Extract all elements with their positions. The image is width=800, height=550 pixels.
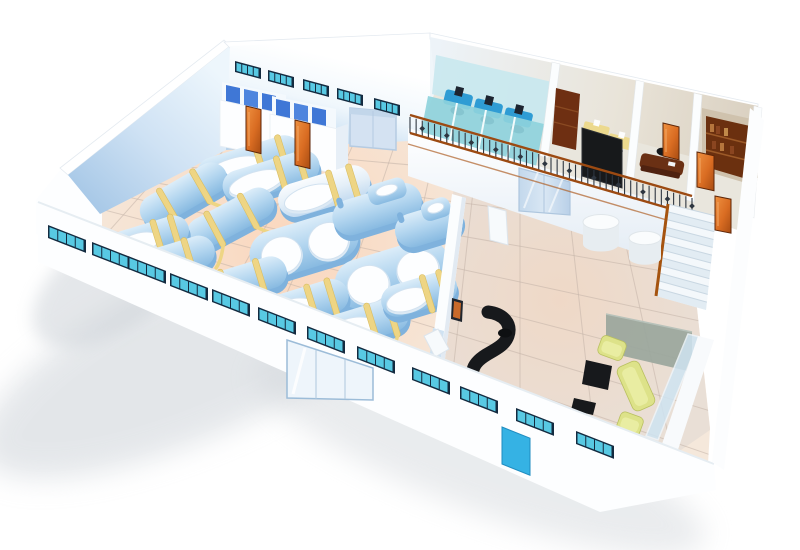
window-pane: [242, 64, 247, 73]
window-pane: [237, 63, 242, 72]
window-pane: [344, 91, 349, 100]
window-pane: [381, 101, 386, 110]
brown-cabinet: [552, 88, 580, 150]
office-door-1: [663, 123, 679, 160]
window-pane: [270, 72, 275, 81]
window-pane: [287, 77, 292, 86]
office-door-3: [715, 196, 731, 233]
window-pane: [275, 73, 280, 82]
restroom-door-2: [295, 120, 310, 169]
book-5: [720, 143, 724, 151]
window-pane: [248, 66, 253, 75]
book-4: [712, 141, 716, 149]
window-pane: [350, 93, 355, 102]
reception-chair: [498, 329, 512, 338]
floorplan-stage: [0, 0, 800, 550]
floorplan-illustration: [0, 0, 800, 550]
restroom-door-1: [246, 106, 261, 154]
window-pane: [356, 95, 361, 104]
window-pane: [376, 100, 381, 109]
table-top: [629, 231, 661, 244]
staircase: [656, 204, 716, 310]
window-pane: [310, 82, 315, 91]
window-pane: [393, 105, 398, 114]
open-door-leaf: [488, 206, 508, 245]
table-top: [583, 214, 619, 229]
back-sliding-door: [350, 108, 396, 150]
window-pane: [322, 86, 327, 95]
wall-picture: [453, 301, 461, 319]
book-2: [716, 126, 720, 134]
window-pane: [339, 90, 344, 99]
window-pane: [254, 68, 259, 77]
book-3: [724, 128, 728, 136]
window-pane: [387, 103, 392, 112]
window-pane: [316, 84, 321, 93]
window-pane: [281, 75, 286, 84]
round-table-2: [629, 231, 661, 264]
window-pane: [305, 81, 310, 90]
book-6: [730, 146, 734, 154]
office-door-2: [697, 152, 714, 191]
book-1: [710, 124, 714, 132]
round-table-1: [583, 214, 619, 251]
